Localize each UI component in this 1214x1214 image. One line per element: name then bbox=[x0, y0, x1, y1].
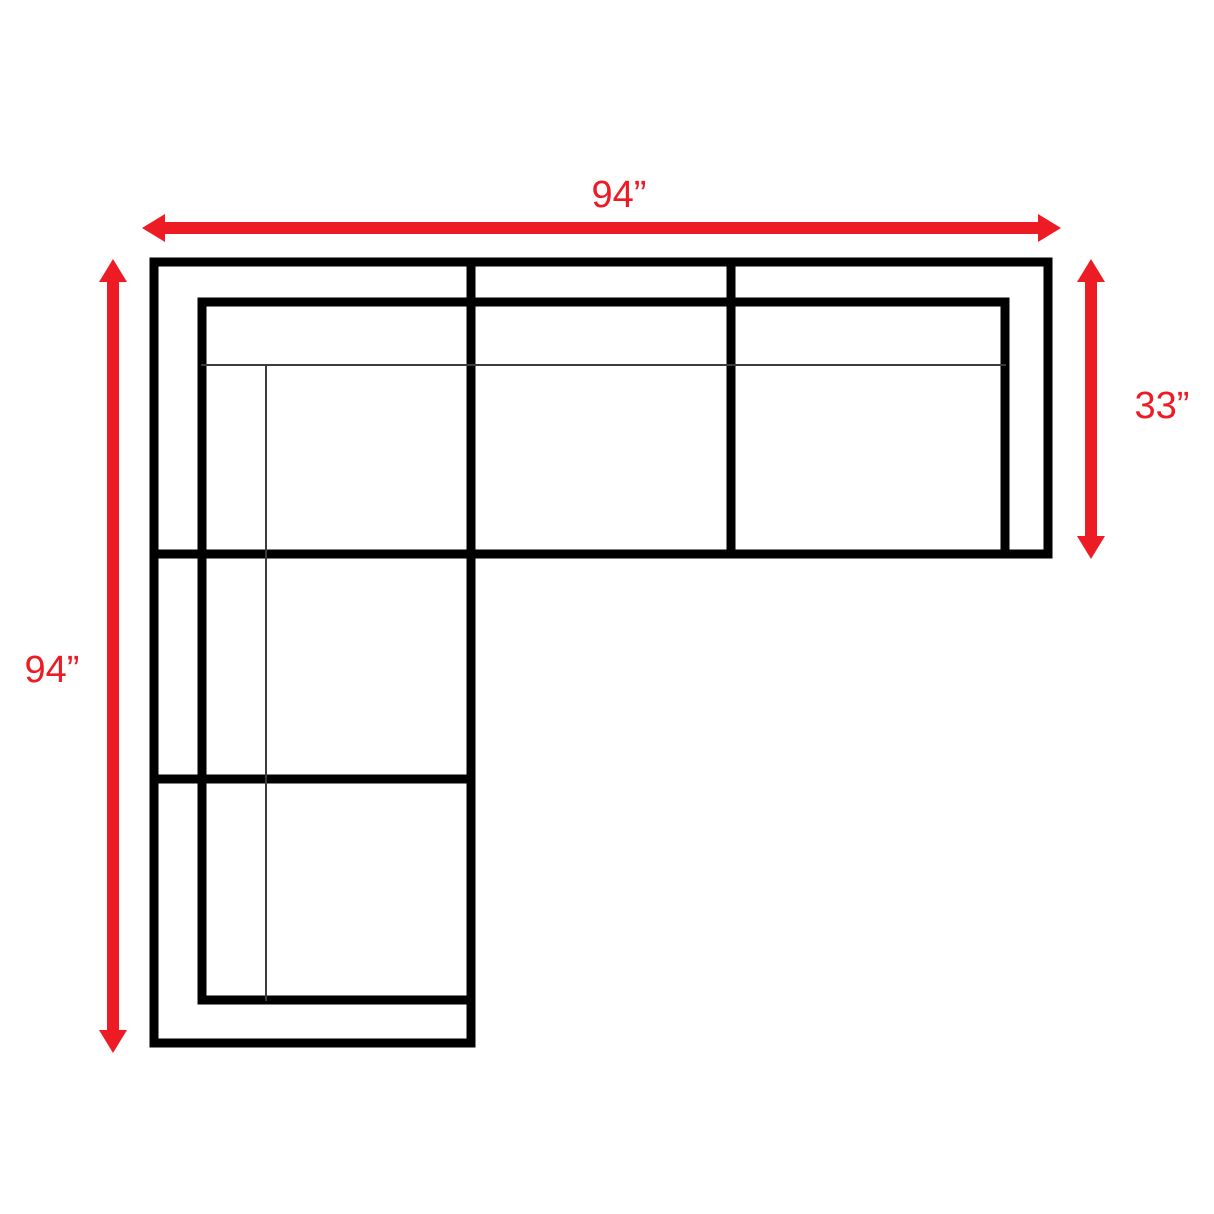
sofa-structure bbox=[154, 262, 1048, 1043]
dimension-label-right-depth: 33” bbox=[1135, 387, 1190, 425]
dimension-arrow-right-depth bbox=[1077, 259, 1105, 559]
arrowhead-right-icon bbox=[1038, 214, 1061, 242]
dimension-arrow-top-width bbox=[142, 214, 1061, 242]
arrowhead-up-icon bbox=[99, 259, 127, 282]
arrowhead-left-icon bbox=[142, 214, 165, 242]
diagram-canvas: 94” 94” 33” bbox=[0, 0, 1214, 1214]
backrest-inner-outline bbox=[202, 302, 1005, 1000]
dimension-arrow-left-height bbox=[99, 259, 127, 1053]
arrowhead-up-icon bbox=[1077, 259, 1105, 282]
arrowhead-down-icon bbox=[99, 1030, 127, 1053]
dimension-label-top-width: 94” bbox=[592, 176, 647, 214]
arrowhead-down-icon bbox=[1077, 536, 1105, 559]
sofa-outer-outline bbox=[154, 262, 1048, 1043]
dimension-label-left-height: 94” bbox=[25, 651, 80, 689]
